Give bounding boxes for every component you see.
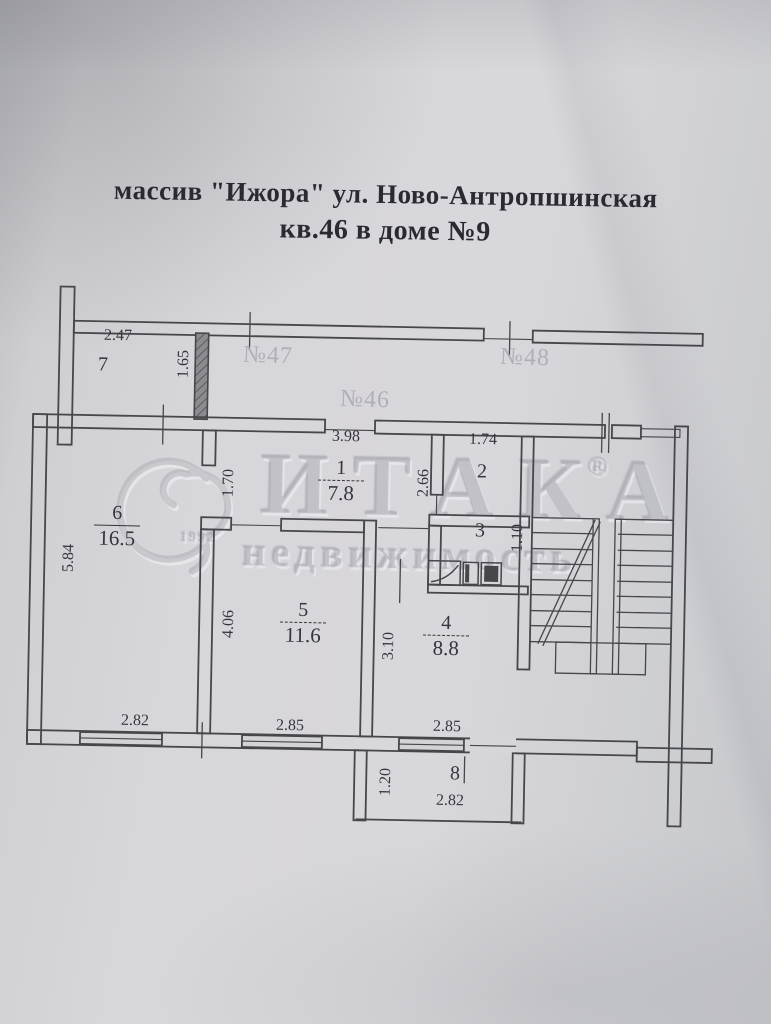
top-wall-right xyxy=(533,331,703,346)
dim-balcony-depth: 1.20 xyxy=(377,768,396,796)
room1-label: 1 7.8 xyxy=(318,458,365,505)
dim-room5-depth: 4.06 xyxy=(220,610,239,638)
room6-room5-wall xyxy=(197,529,214,733)
room8-number: 8 xyxy=(450,762,460,785)
room3-number: 3 xyxy=(475,519,485,542)
right-outer-wall xyxy=(667,426,688,826)
left-outer-wall xyxy=(27,414,47,744)
dim-hall-width: 3.98 xyxy=(332,428,360,447)
dim-balcony-width: 2.82 xyxy=(436,792,464,811)
bathroom-south-wall xyxy=(428,585,528,595)
staircase xyxy=(529,518,673,676)
dim-wc-depth: 2.66 xyxy=(415,469,434,497)
room1-number: 1 xyxy=(336,458,346,478)
room4-number: 4 xyxy=(441,613,451,633)
photo-background: массив "Ижора" ул. Ново-Антропшинская кв… xyxy=(0,0,771,1024)
room7-number: 7 xyxy=(98,353,108,376)
walls xyxy=(26,286,721,827)
balcony-wall-left xyxy=(353,750,366,820)
dim-room7-depth: 1.65 xyxy=(175,350,194,378)
dim-room6-width: 2.82 xyxy=(121,712,149,731)
stair-stringer-left xyxy=(590,519,599,674)
room5-area: 11.6 xyxy=(285,624,321,647)
dim-bath-depth: 1.10 xyxy=(509,524,528,552)
dim-room6-depth: 5.84 xyxy=(60,544,79,572)
hatched-partition-wall xyxy=(194,333,209,419)
room1-area: 7.8 xyxy=(327,482,354,505)
stair-landing xyxy=(555,642,646,675)
dim-room7-width: 2.47 xyxy=(104,327,132,346)
room4-area: 8.8 xyxy=(432,637,459,660)
neighbor-apartment-48-label: №48 xyxy=(500,344,551,373)
balcony-edge xyxy=(355,819,521,822)
bathroom-fixtures xyxy=(428,561,501,586)
balcony-wall-right xyxy=(511,753,524,823)
room6-area: 16.5 xyxy=(98,527,135,550)
dim-wc-width: 1.74 xyxy=(469,431,497,450)
room6-number: 6 xyxy=(112,503,122,523)
dim-room5-width: 2.85 xyxy=(276,717,304,736)
apartment-46-label: №46 xyxy=(340,386,391,415)
room5-door-opening xyxy=(231,525,281,526)
room4-door-opening xyxy=(378,528,428,529)
stairwell-wall xyxy=(517,436,533,669)
room6-label: 6 16.5 xyxy=(94,503,141,550)
top-wall-left xyxy=(74,321,484,341)
room2-number: 2 xyxy=(477,460,487,483)
room4-label: 4 8.8 xyxy=(423,613,470,660)
dim-room4-width: 2.85 xyxy=(433,718,461,737)
left-stub-wall xyxy=(58,286,75,444)
dim-hall-left-width: 1.70 xyxy=(220,469,239,497)
room5-room4-wall xyxy=(360,520,376,736)
room5-number: 5 xyxy=(298,600,308,620)
dim-room4-depth: 3.10 xyxy=(380,632,399,660)
room5-label: 5 11.6 xyxy=(280,600,327,647)
neighbor-apartment-47-label: №47 xyxy=(243,342,294,371)
